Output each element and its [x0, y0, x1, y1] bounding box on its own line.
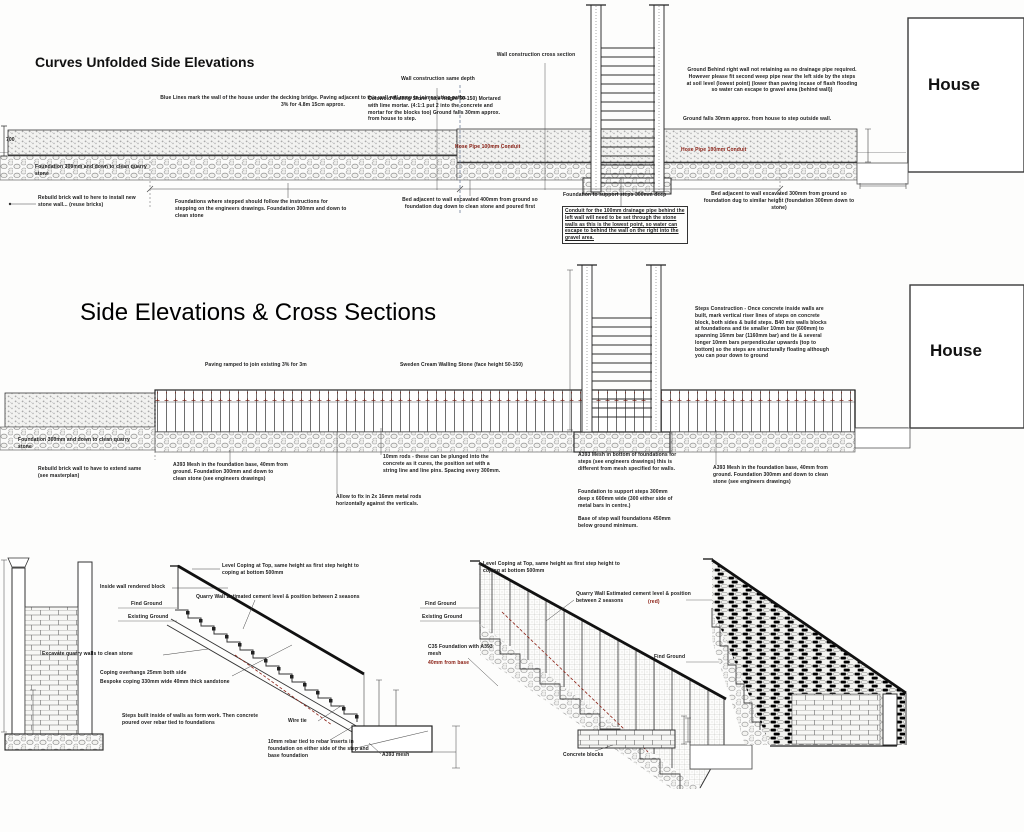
annotation-boxed: Conduit for the 100mm drainage pipe behi…	[562, 206, 688, 244]
annotation-red: Hose Pipe 100mm Conduit	[455, 144, 520, 151]
annotation: Existing Ground	[128, 614, 168, 621]
top-section-title: Curves Unfolded Side Elevations	[35, 55, 254, 70]
annotation: Foundations where stepped should follow …	[175, 199, 347, 219]
annotation: Bed adjacent to wall excavated 300mm fro…	[700, 191, 858, 211]
house-label-middle: House	[930, 342, 982, 361]
house-box-top	[908, 18, 1024, 172]
annotation: Wall construction cross section	[494, 52, 578, 59]
annotation: 10mm rods - these can be plunged into th…	[383, 454, 501, 474]
annotation: Rebuild brick wall to have to extend sam…	[38, 466, 146, 480]
annotation: Find Ground	[131, 601, 162, 608]
drawing-sheet: Curves Unfolded Side Elevations Side Ele…	[0, 0, 1024, 832]
drawing-layer	[0, 0, 1024, 832]
annotation: A393 Mesh in the foundation base, 40mm f…	[713, 465, 833, 485]
annotation: Bespoke coping 330mm wide 40mm thick san…	[100, 679, 230, 686]
annotation: Bed adjacent to wall excavated 400mm fro…	[396, 197, 544, 211]
annotation: Find Ground	[425, 601, 456, 608]
annotation: Rebuild brick wall to here to install ne…	[38, 195, 144, 209]
annotation: Foundation 300mm and down to clean quarr…	[18, 437, 130, 451]
annotation: Ground Behind right wall not retaining a…	[686, 67, 858, 94]
annotation: Existing Ground	[422, 614, 462, 621]
annotation: Quarry Wall Estimated cement level & pos…	[196, 594, 360, 601]
annotation: 10mm rebar tied to rebar inserts in foun…	[268, 739, 373, 759]
annotation: Base of step wall foundations 450mm belo…	[578, 516, 678, 530]
annotation: Level Coping at Top, same height as firs…	[222, 563, 372, 577]
annotation: Foundation 300mm and down to clean quarr…	[35, 164, 147, 178]
dimension-label: 700	[6, 137, 15, 144]
annotation: Steps built inside of walls as form work…	[122, 713, 262, 727]
annotation: Wall construction same depth	[394, 76, 482, 83]
annotation-red: 40mm from base	[428, 660, 469, 667]
annotation: Ground falls 30mm approx. from house to …	[683, 116, 831, 123]
annotation: A393 Mesh in bottom of foundations for s…	[578, 452, 678, 472]
house-label-top: House	[928, 76, 980, 95]
annotation-red: (red)	[648, 599, 660, 606]
annotation: Excavate quarry walls to clean stone	[42, 651, 133, 658]
annotation: A393 Mesh in the foundation base, 40mm f…	[173, 462, 288, 482]
annotation: Foundation to support steps 300mm deep	[563, 192, 683, 199]
annotation: A393 mesh	[382, 752, 409, 759]
annotation: Allow to fix in 2x 16mm metal rods horiz…	[336, 494, 438, 508]
annotation: Quarry Wall Estimated cement level & pos…	[576, 591, 696, 605]
annotation: Steps Construction - Once concrete insid…	[695, 306, 830, 360]
annotation: C35 Foundation with A393 mesh	[428, 644, 498, 658]
annotation-red: Hose Pipe 100mm Conduit	[681, 147, 746, 154]
annotation: Cotswold Walling Stone (face height 50-1…	[368, 96, 504, 123]
top-elevation-drawing	[0, 5, 1024, 215]
annotation: Inside wall rendered block	[100, 584, 170, 591]
annotation: Find Ground	[654, 654, 685, 661]
annotation: Level Coping at Top, same height as firs…	[483, 561, 638, 575]
annotation: Sweden Cream Walling Stone (face height …	[400, 362, 523, 369]
annotation: Concrete blocks	[563, 752, 603, 759]
annotation: Coping overhangs 25mm both side	[100, 670, 186, 677]
annotation: Foundation to support steps 300mm deep x…	[578, 489, 678, 509]
middle-section-title: Side Elevations & Cross Sections	[80, 300, 436, 326]
annotation: Paving ramped to join existing 3% for 3m	[205, 362, 307, 369]
annotation: Wire tie	[288, 718, 307, 725]
